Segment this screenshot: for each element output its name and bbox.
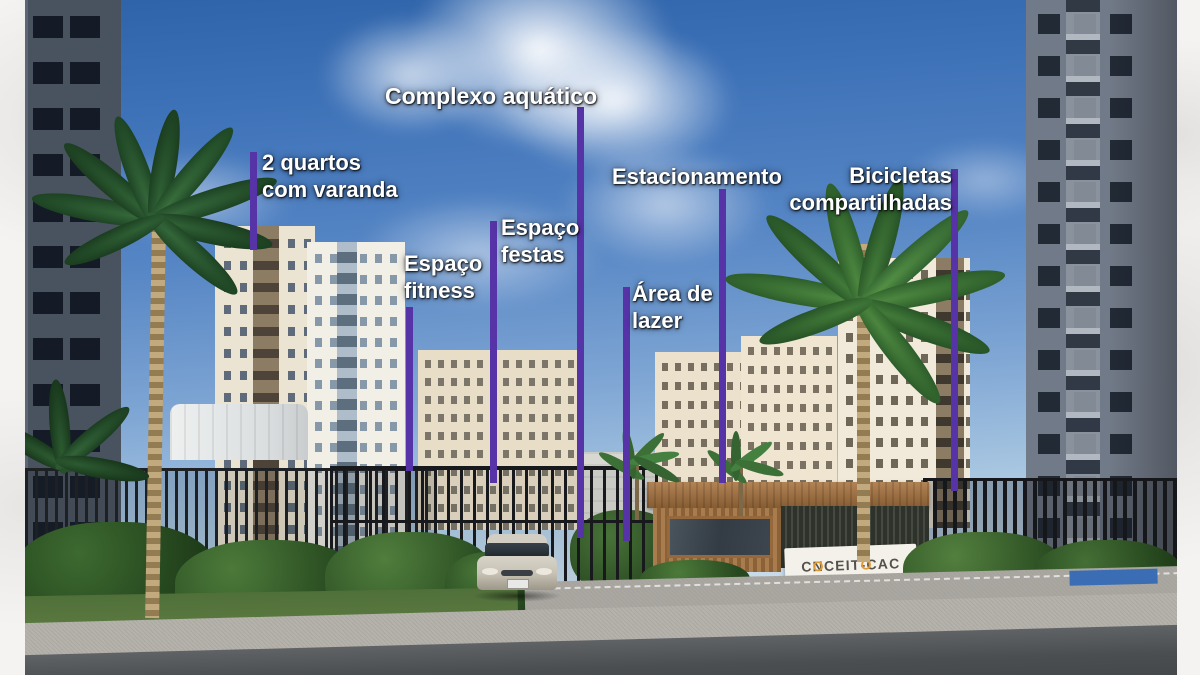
marketing-slide: CONCEITO-CAC by IVECA <box>0 0 1200 675</box>
car-license-plate <box>507 579 529 589</box>
car-shadow <box>472 590 562 602</box>
gate-sign-brand: CONCEITO-CAC <box>801 555 901 574</box>
gatehouse-roof <box>647 482 929 508</box>
car-grille <box>501 570 533 576</box>
car-headlight-left <box>482 568 498 575</box>
gate-rail <box>330 520 660 523</box>
car-headlight-right <box>536 568 552 575</box>
water-tanks <box>170 404 308 460</box>
palm-frond <box>731 431 741 481</box>
cloud <box>560 145 770 265</box>
gatehouse-window <box>667 516 773 558</box>
cloud <box>320 15 500 135</box>
condominium-render: CONCEITO-CAC by IVECA <box>25 0 1177 675</box>
accessible-parking-marking <box>1069 569 1157 586</box>
car <box>477 534 557 602</box>
